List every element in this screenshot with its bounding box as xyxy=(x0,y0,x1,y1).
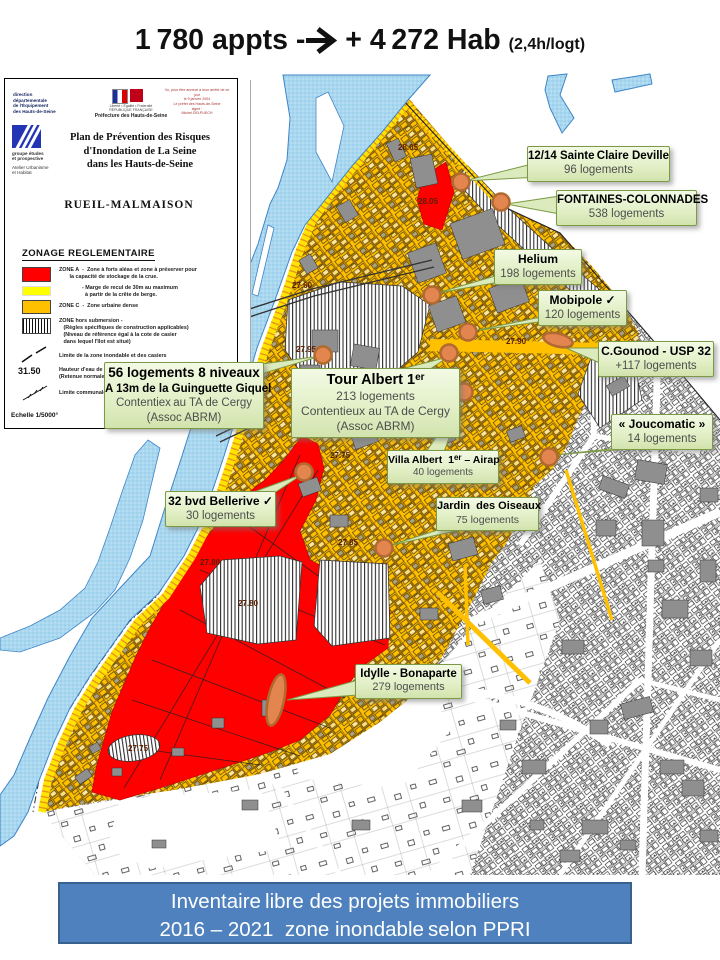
svg-text:27.80: 27.80 xyxy=(238,599,259,608)
svg-text:27.75: 27.75 xyxy=(128,744,149,753)
svg-text:27.75: 27.75 xyxy=(330,451,351,460)
svg-text:27.95: 27.95 xyxy=(296,345,317,354)
svg-text:27.85: 27.85 xyxy=(338,538,359,547)
svg-text:27.90: 27.90 xyxy=(506,337,527,346)
svg-text:27.80: 27.80 xyxy=(200,558,221,567)
svg-text:28.05: 28.05 xyxy=(418,197,439,206)
svg-text:28.05: 28.05 xyxy=(398,143,419,152)
svg-text:27.60: 27.60 xyxy=(292,281,313,290)
